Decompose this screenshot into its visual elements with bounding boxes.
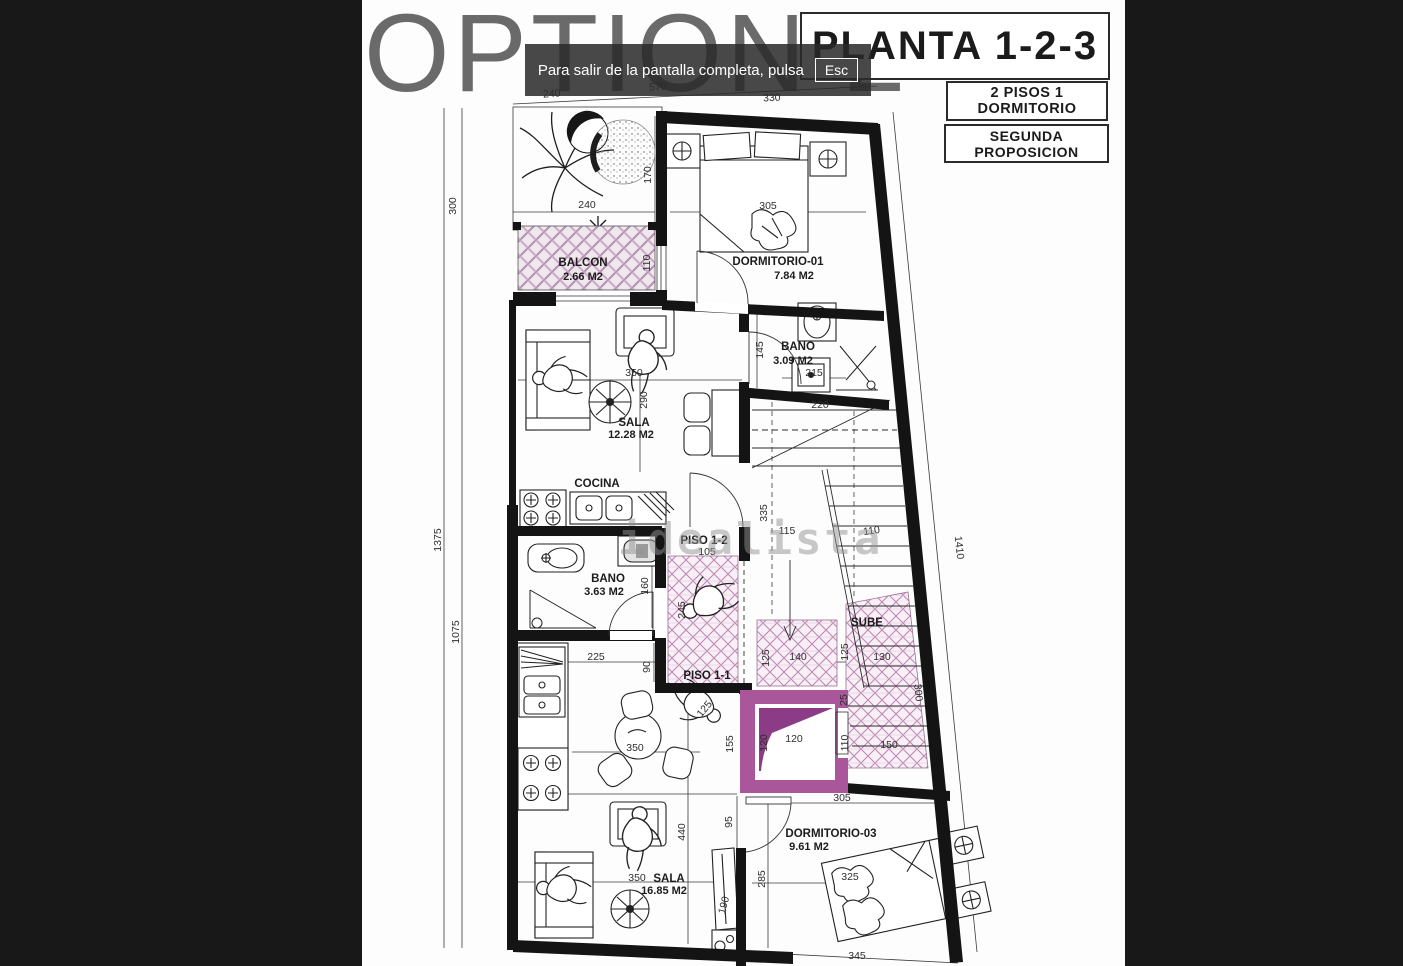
dim-label: 350: [625, 367, 643, 379]
nightstand-symbol: [810, 142, 846, 176]
dim-label: 285: [756, 870, 768, 888]
room-label: PISO 1-1: [683, 670, 731, 682]
dim-label: 95: [723, 816, 735, 828]
dim-label: 125: [839, 643, 851, 661]
fullscreen-image-viewer: OPTION 2: [0, 0, 1403, 966]
plan-tag-box: SEGUNDA PROPOSICION: [944, 124, 1109, 163]
dim-label: 440: [676, 823, 688, 841]
dim-label: 245: [676, 601, 688, 619]
room-label: BALCON: [558, 257, 607, 269]
bed-symbol: [700, 132, 808, 252]
dim-label: 290: [638, 391, 650, 409]
dim-label: 345: [848, 950, 866, 962]
dim-label: 350: [628, 872, 646, 884]
room-label: BANO: [781, 341, 815, 353]
dim-label: 130: [873, 651, 891, 663]
toast-message: Para salir de la pantalla completa, puls…: [538, 62, 804, 79]
dim-label: 325: [841, 871, 859, 883]
dim-label: 1410: [952, 535, 966, 560]
plan-tag1: 2 PISOS 1 DORMITORIO: [948, 85, 1106, 117]
dim-label: 25: [838, 694, 850, 706]
dim-label: 150: [880, 739, 898, 751]
room-area: 16.85 M2: [641, 885, 687, 897]
toilet-symbol: [528, 544, 584, 572]
room-area: 3.09 M2: [773, 355, 813, 367]
dim-label: 140: [789, 651, 807, 663]
plan-tag-box: 2 PISOS 1 DORMITORIO: [946, 81, 1108, 121]
dim-label: 350: [626, 742, 644, 754]
round-table-symbol: [595, 689, 695, 790]
floor-plan: 240 570 330 300 1375 1075 1410 170 240 1…: [0, 0, 1403, 966]
dim-label: 305: [759, 200, 777, 212]
dim-label: 120: [758, 734, 770, 752]
dim-label: 1075: [450, 620, 462, 644]
esc-key: Esc: [815, 58, 858, 82]
stove-symbol: [520, 490, 566, 528]
fullscreen-exit-toast: Para salir de la pantalla completa, puls…: [525, 44, 871, 96]
dim-label: 225: [587, 651, 605, 663]
room-label: BANO: [591, 573, 625, 585]
dim-label: 300: [447, 197, 459, 215]
room-area: 12.28 M2: [608, 429, 654, 441]
dim-label: 305: [833, 792, 851, 804]
dim-label: 145: [754, 341, 766, 359]
room-area: 3.63 M2: [584, 586, 624, 598]
dim-label: 170: [642, 166, 654, 184]
dim-label: 240: [578, 199, 596, 211]
dim-label: 215: [805, 367, 823, 379]
idealista-watermark: idealista: [618, 514, 883, 565]
dim-label: 90: [641, 661, 653, 673]
dim-label: 125: [760, 649, 772, 667]
nightstand-symbol: [664, 134, 700, 168]
dim-label: 110: [839, 734, 851, 751]
kitchenette-counter-symbol: [516, 643, 568, 810]
room-area: 7.84 M2: [774, 270, 814, 282]
dim-label: 155: [724, 735, 736, 753]
dim-label: 110: [641, 254, 653, 271]
room-label: DORMITORIO-01: [732, 256, 824, 268]
dining-table-symbol: [684, 390, 744, 456]
room-label: COCINA: [574, 478, 619, 490]
dim-label: 1375: [432, 528, 444, 552]
room-label: SALA: [618, 417, 649, 429]
dim-label: 300: [911, 683, 925, 702]
dim-label: 160: [639, 577, 651, 595]
dim-label: 120: [785, 733, 803, 745]
dim-label: 220: [811, 399, 829, 411]
plan-tag2: SEGUNDA PROPOSICION: [946, 128, 1107, 160]
corridor-hatch: [668, 556, 738, 684]
bed-symbol: [821, 826, 995, 943]
room-area: 9.61 M2: [789, 841, 829, 853]
room-label: SALA: [653, 873, 684, 885]
room-label: DORMITORIO-03: [785, 828, 876, 840]
room-area: 2.66 M2: [563, 271, 603, 283]
room-label: SUBE: [851, 617, 883, 629]
shower-symbol: [836, 346, 878, 390]
